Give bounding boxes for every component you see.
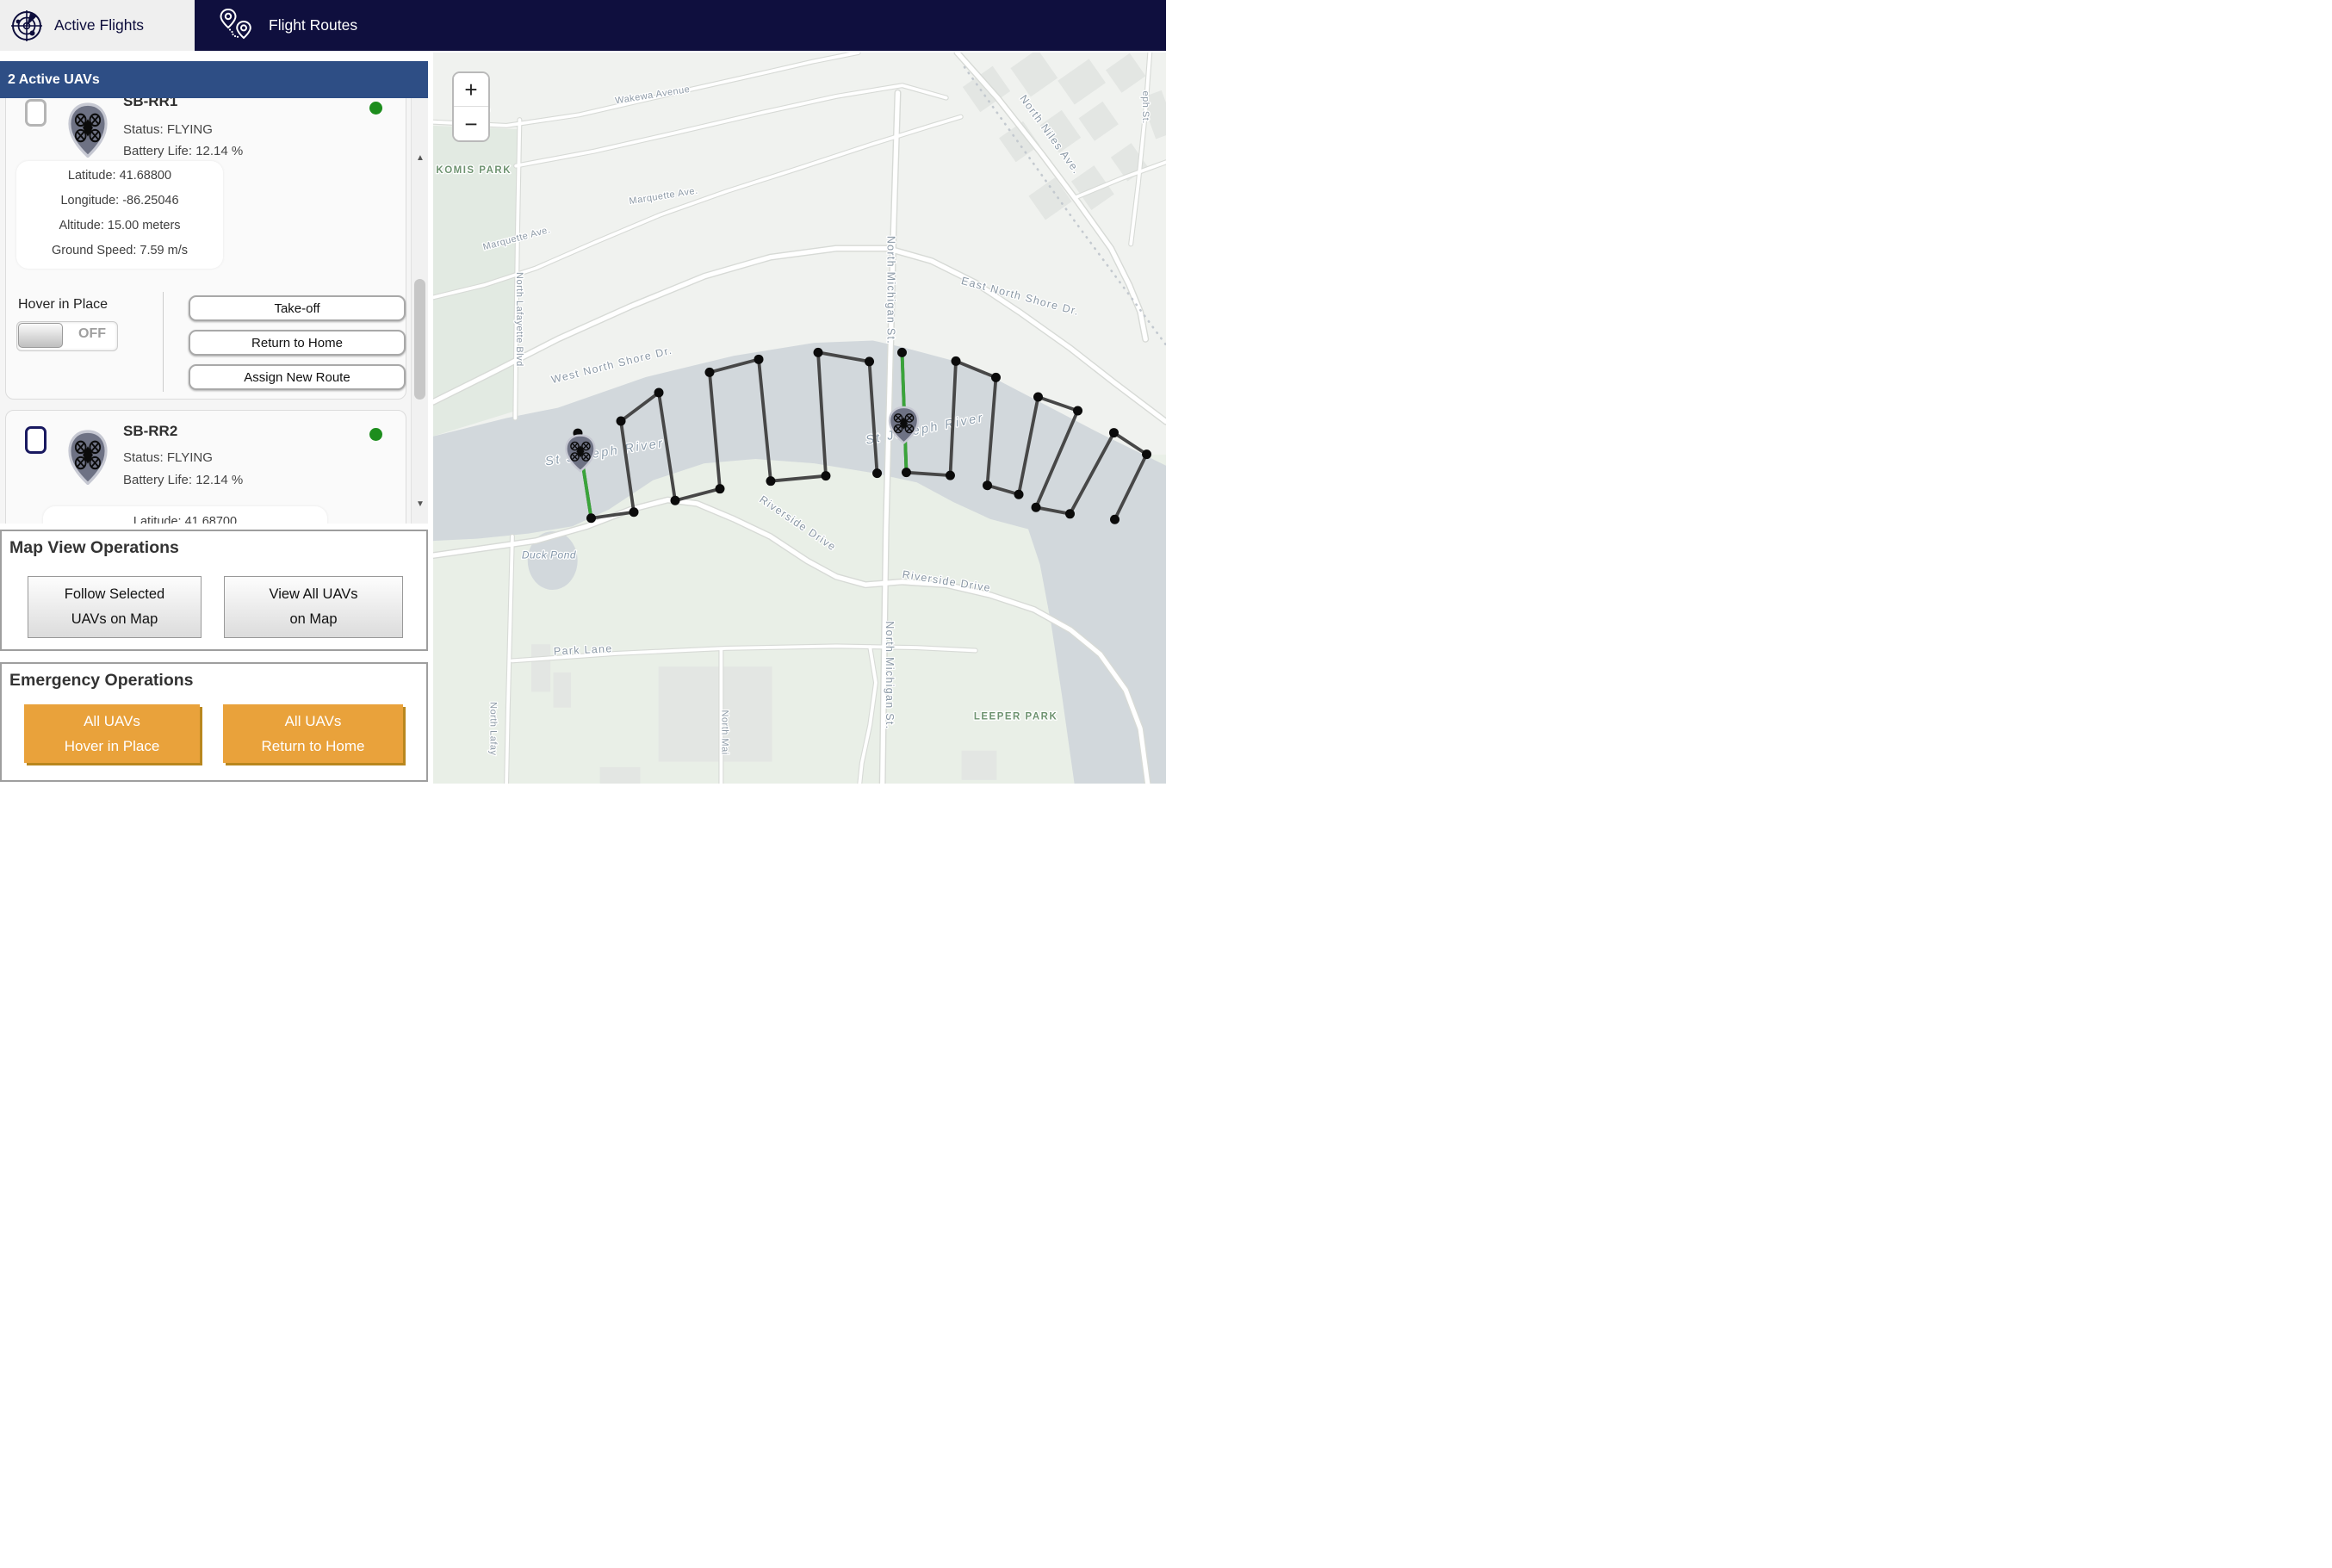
divider (163, 292, 164, 392)
take-off-button[interactable]: Take-off (189, 295, 406, 321)
tab-flight-routes[interactable]: Flight Routes (195, 0, 487, 51)
route-waypoint (821, 471, 830, 480)
zoom-in-button[interactable]: + (454, 73, 488, 107)
telemetry-longitude: Longitude: -86.25046 (16, 189, 223, 214)
telemetry-altitude: Altitude: 15.00 meters (16, 214, 223, 239)
hover-in-place-label: Hover in Place (18, 297, 108, 313)
uav-select-checkbox[interactable] (25, 99, 47, 127)
scrollbar-thumb[interactable] (414, 279, 425, 400)
map-label: Duck Pond (522, 549, 576, 561)
uav-battery: Battery Life: 12.14 % (123, 473, 243, 487)
route-waypoint (1065, 509, 1075, 518)
route-waypoint (1073, 406, 1082, 416)
route-waypoint (671, 496, 680, 505)
route-waypoint (1110, 515, 1119, 524)
zoom-out-button[interactable]: − (454, 107, 488, 140)
building (1057, 59, 1106, 104)
active-uavs-header: 2 Active UAVs (0, 61, 428, 98)
tab-active-flights[interactable]: Active Flights (0, 0, 195, 51)
route-waypoint (617, 416, 626, 425)
map-label: North Lafayette Blvd (514, 272, 524, 367)
uav-shield-icon (68, 102, 108, 158)
tab-label: Flight Routes (269, 16, 357, 34)
top-nav: Active Flights Flight Routes (0, 0, 1166, 51)
uav-online-indicator (369, 428, 382, 441)
road (516, 85, 946, 165)
telemetry-latitude: Latitude: 41.68800 (16, 164, 223, 189)
uav-shield-icon (68, 430, 108, 485)
map-view-operations-panel: Map View Operations Follow Selected UAVs… (0, 530, 428, 651)
assign-new-route-button[interactable]: Assign New Route (189, 364, 406, 390)
route-waypoint (865, 356, 874, 366)
route-waypoint (1142, 449, 1151, 459)
route-waypoint (902, 468, 911, 477)
uav-name: SB-RR1 (123, 98, 177, 110)
route-waypoint (952, 356, 961, 366)
route-waypoint (704, 368, 714, 377)
map-label: Wakewa Avenue (615, 84, 692, 107)
scroll-up-icon[interactable]: ▲ (412, 153, 428, 163)
map-label: North Mai (719, 710, 729, 754)
panel-title: Emergency Operations (9, 671, 194, 691)
route-waypoint (715, 484, 724, 493)
map-label: LEEPER PARK (974, 711, 1057, 722)
route-waypoint (766, 476, 775, 486)
uav-status: Status: FLYING (123, 122, 213, 137)
uav-online-indicator (369, 102, 382, 115)
radar-icon (10, 9, 43, 42)
route-waypoint (814, 348, 823, 357)
uav-list-scrollbar[interactable]: ▲ ▼ (411, 98, 428, 524)
hover-in-place-toggle[interactable]: OFF (16, 321, 118, 351)
view-all-uavs-button[interactable]: View All UAVs on Map (224, 576, 403, 638)
uav-list: SB-RR1 Status: FLYING Battery Life: 12.1… (0, 98, 428, 524)
route-waypoint (946, 471, 955, 480)
scroll-down-icon[interactable]: ▼ (412, 499, 428, 509)
building (1079, 102, 1119, 141)
map-canvas[interactable]: Wakewa AvenueAvenueKOMIS PARKMarquette A… (433, 53, 1166, 784)
tab-label: Active Flights (54, 16, 144, 34)
route-waypoint (754, 355, 764, 364)
follow-selected-uavs-button[interactable]: Follow Selected UAVs on Map (28, 576, 202, 638)
map-label: North Michigan St. (884, 621, 896, 729)
uav-telemetry-box: Latitude: 41.68800 Longitude: -86.25046 … (16, 161, 223, 269)
map-label: North Michigan St. (885, 236, 897, 344)
route-pins-icon (217, 7, 255, 45)
building (531, 644, 550, 691)
all-uavs-hover-button[interactable]: All UAVs Hover in Place (24, 704, 200, 763)
uav-status: Status: FLYING (123, 450, 213, 465)
telemetry-ground-speed: Ground Speed: 7.59 m/s (16, 239, 223, 263)
building (554, 672, 571, 708)
map-label: North Lafay (487, 702, 498, 755)
telemetry-latitude: Latitude: 41.68700 (43, 510, 327, 524)
uav-name: SB-RR2 (123, 423, 177, 440)
map-label: KOMIS PARK (436, 165, 512, 176)
emergency-operations-panel: Emergency Operations All UAVs Hover in P… (0, 662, 428, 782)
route-waypoint (897, 348, 907, 357)
all-uavs-return-home-button[interactable]: All UAVs Return to Home (223, 704, 403, 763)
uav-battery: Battery Life: 12.14 % (123, 144, 243, 158)
route-waypoint (1109, 428, 1119, 437)
building (1010, 53, 1057, 96)
building (962, 751, 997, 780)
route-waypoint (983, 480, 992, 490)
map-label: eph St. (1140, 90, 1150, 123)
uav-ground-control-app: Active Flights Flight Routes 2 Active UA… (0, 0, 1166, 784)
uav-card-sb-rr1: SB-RR1 Status: FLYING Battery Life: 12.1… (5, 98, 406, 400)
route-waypoint (654, 387, 664, 397)
route-waypoint (991, 373, 1001, 382)
route-waypoint (586, 513, 596, 523)
route-waypoint (630, 507, 639, 517)
map-layers: Wakewa AvenueAvenueKOMIS PARKMarquette A… (433, 53, 1166, 784)
building (659, 666, 772, 761)
map-zoom-control: + − (452, 71, 490, 142)
toggle-knob[interactable] (18, 323, 63, 348)
route-waypoint (872, 468, 882, 478)
route-waypoint (1033, 392, 1043, 401)
route-waypoint (1032, 503, 1041, 512)
uav-telemetry-box-partial: Latitude: 41.68700 (43, 506, 327, 524)
active-uavs-count: 2 Active UAVs (8, 72, 100, 88)
route-waypoint (1014, 490, 1024, 499)
return-to-home-button[interactable]: Return to Home (189, 330, 406, 356)
building (600, 767, 641, 784)
panel-title: Map View Operations (9, 538, 179, 558)
road-casing (433, 53, 859, 126)
uav-select-checkbox[interactable] (25, 426, 47, 454)
building (1106, 53, 1145, 93)
toggle-state-label: OFF (78, 326, 106, 342)
